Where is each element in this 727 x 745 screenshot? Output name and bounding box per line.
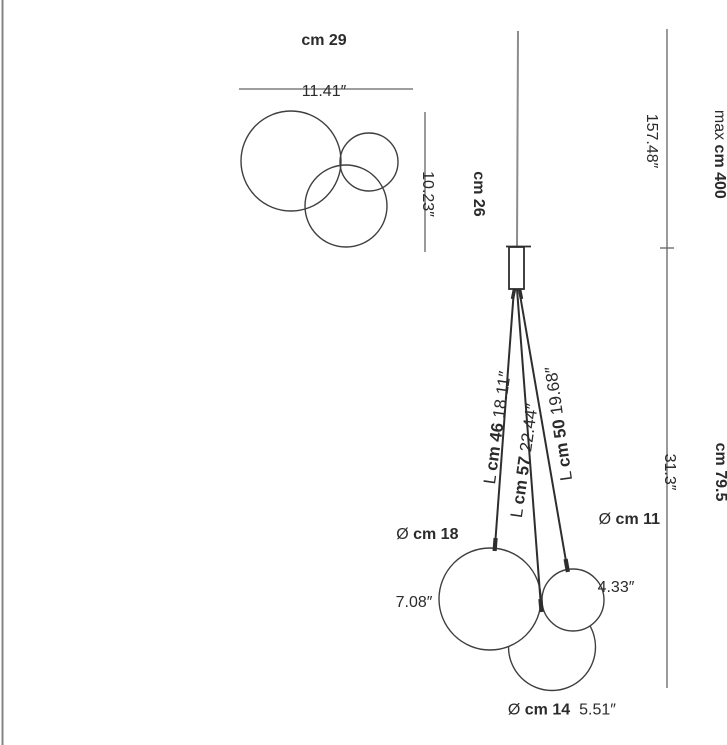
dia11-symbol: Ø — [599, 511, 616, 528]
large-globe-diameter-label: Ø cm 18 7.08″ — [370, 475, 459, 645]
medium-globe-connector — [540, 599, 541, 612]
dia11-cm: cm 11 — [616, 511, 660, 528]
fixture-cm-value: cm 79.5 — [712, 443, 727, 502]
small-globe-diameter-label: Ø cm 11 4.33″ — [572, 460, 660, 630]
max-height-label: max cm 400 157.48″ — [609, 83, 727, 199]
large-globe-connector — [495, 538, 496, 551]
canopy-body — [509, 247, 524, 289]
canopy-cable-stub-left — [513, 289, 515, 299]
top-view-depth-label: cm 26 10.23″ — [385, 171, 521, 217]
depth-inch-value: 10.23″ — [419, 171, 436, 217]
width-inch-value: 11.41″ — [302, 83, 347, 100]
fixture-inch-value: 31.3″ — [661, 454, 678, 491]
max-prefix: max — [711, 110, 727, 145]
cable57-cm: cm 57 — [509, 455, 535, 505]
pendant-lamp-dimension-diagram: cm 29 11.41″ cm 26 10.23″ max cm 400 157… — [0, 0, 727, 745]
dia14-cm: cm 14 — [525, 702, 570, 719]
canopy-cable-stub-right — [520, 289, 522, 299]
width-cm-value: cm 29 — [301, 32, 346, 49]
cable50-inch: 19.68″ — [541, 365, 567, 420]
top-view-medium-globe-outline — [305, 165, 387, 247]
max-cm-value: cm 400 — [711, 145, 727, 199]
medium-globe-diameter-label: Ø cm 145.51″ — [490, 685, 616, 736]
dia11-inch: 4.33″ — [598, 579, 635, 596]
max-inch-value: 157.48″ — [643, 114, 660, 169]
dia14-symbol: Ø — [508, 702, 525, 719]
small-globe-connector — [566, 559, 568, 572]
cable50-cm: cm 50 — [549, 418, 575, 468]
depth-cm-value: cm 26 — [470, 171, 487, 216]
top-view-width-label: cm 29 11.41″ — [301, 0, 346, 134]
dia18-cm: cm 18 — [413, 526, 458, 543]
dia18-inch: 7.08″ — [396, 594, 433, 611]
dia14-inch: 5.51″ — [579, 702, 616, 719]
dia18-symbol: Ø — [396, 526, 413, 543]
